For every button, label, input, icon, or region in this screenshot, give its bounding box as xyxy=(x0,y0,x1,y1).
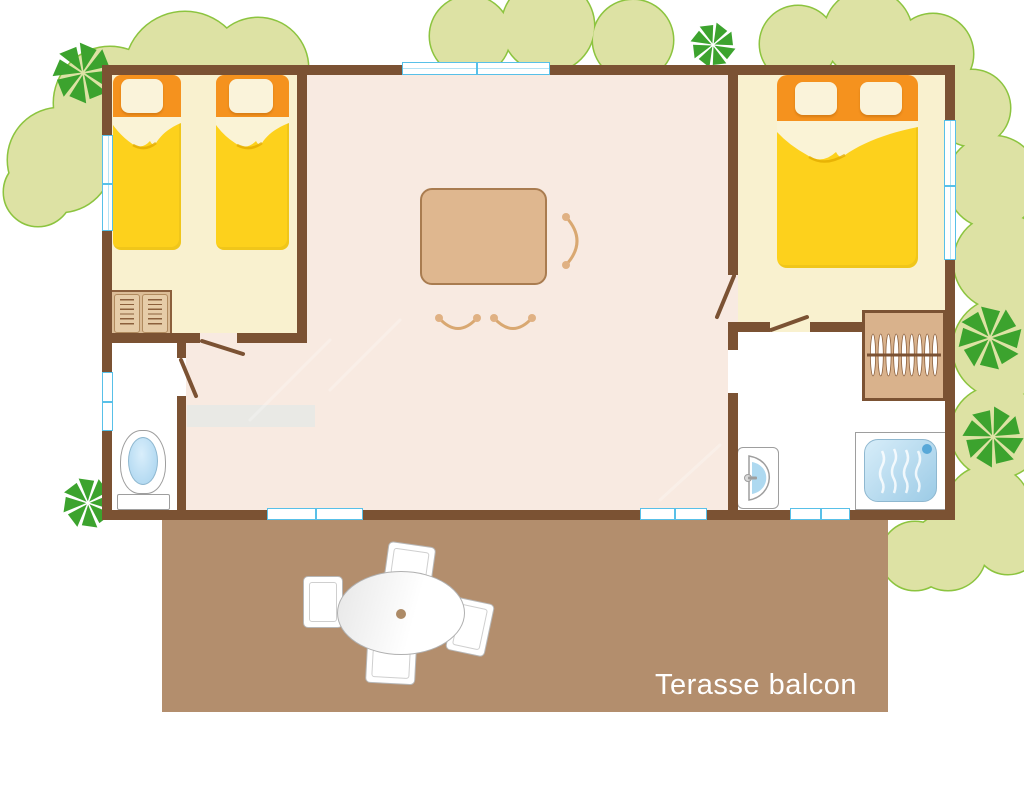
door-swing xyxy=(202,341,243,354)
door-swing-overlay xyxy=(102,65,955,520)
floor-highlight xyxy=(330,320,400,390)
floor-highlight xyxy=(250,340,330,420)
door-swing xyxy=(181,360,196,396)
door-swing xyxy=(717,276,734,317)
terrace-table xyxy=(337,571,465,655)
house xyxy=(102,65,955,520)
terrace-label: Terasse balcon xyxy=(655,669,857,702)
door-swing xyxy=(771,317,807,330)
floorplan-canvas: Terasse balcon xyxy=(0,0,1024,810)
floor-highlight xyxy=(660,445,720,500)
